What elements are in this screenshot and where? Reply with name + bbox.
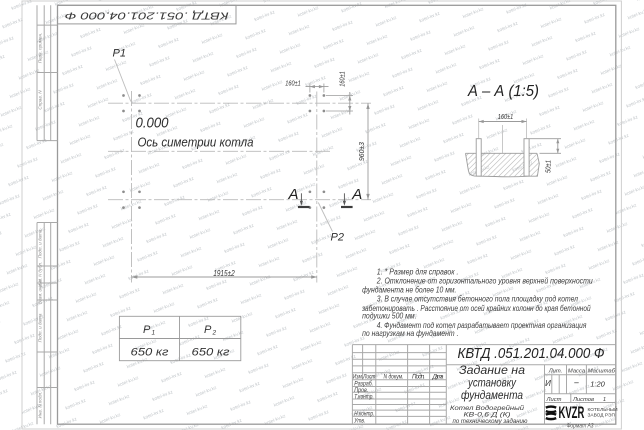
svg-text:kotel-kv.kz: kotel-kv.kz	[108, 393, 131, 406]
svg-text:kotel-kv.kz: kotel-kv.kz	[128, 268, 151, 281]
svg-text:kotel-kv.kz: kotel-kv.kz	[519, 229, 542, 242]
svg-text:kotel-kv.kz: kotel-kv.kz	[327, 284, 350, 297]
svg-text:kotel-kv.kz: kotel-kv.kz	[398, 224, 421, 237]
svg-text:kotel-kv.kz: kotel-kv.kz	[75, 291, 98, 304]
svg-text:kotel-kv.kz: kotel-kv.kz	[105, 59, 128, 72]
svg-text:КВТД .051.201.04.000 Ф: КВТД .051.201.04.000 Ф	[458, 345, 605, 362]
svg-text:фундамента не более 10 мм.: фундамента не более 10 мм.	[362, 285, 456, 294]
svg-text:kotel-kv.kz: kotel-kv.kz	[257, 343, 280, 356]
svg-text:kotel-kv.kz: kotel-kv.kz	[375, 15, 398, 28]
svg-text:kotel-kv.kz: kotel-kv.kz	[201, 32, 224, 45]
svg-text:kotel-kv.kz: kotel-kv.kz	[96, 77, 119, 90]
svg-text:kotel-kv.kz: kotel-kv.kz	[242, 204, 265, 217]
svg-text:kotel-kv.kz: kotel-kv.kz	[422, 345, 445, 358]
svg-text:kotel-kv.kz: kotel-kv.kz	[614, 290, 637, 303]
svg-text:kotel-kv.kz: kotel-kv.kz	[321, 126, 344, 139]
svg-text:–: –	[573, 378, 579, 387]
svg-text:kotel-kv.kz: kotel-kv.kz	[270, 60, 293, 73]
svg-text:kotel-kv.kz: kotel-kv.kz	[269, 148, 292, 161]
svg-text:kotel-kv.kz: kotel-kv.kz	[417, 99, 440, 112]
svg-text:kotel-kv.kz: kotel-kv.kz	[99, 412, 122, 425]
svg-text:kotel-kv.kz: kotel-kv.kz	[608, 133, 631, 146]
svg-text:kotel-kv.kz: kotel-kv.kz	[186, 403, 209, 416]
svg-text:kotel-kv.kz: kotel-kv.kz	[231, 311, 254, 324]
svg-text:kotel-kv.kz: kotel-kv.kz	[441, 219, 464, 232]
svg-text:kotel-kv.kz: kotel-kv.kz	[15, 244, 38, 257]
svg-text:kotel-kv.kz: kotel-kv.kz	[341, 0, 364, 13]
svg-text:2: 2	[212, 330, 217, 337]
svg-text:kotel-kv.kz: kotel-kv.kz	[335, 353, 358, 366]
svg-text:kotel-kv.kz: kotel-kv.kz	[252, 97, 275, 110]
svg-text:kotel-kv.kz: kotel-kv.kz	[104, 147, 127, 160]
svg-text:kotel-kv.kz: kotel-kv.kz	[170, 352, 193, 365]
svg-text:kotel-kv.kz: kotel-kv.kz	[582, 100, 605, 113]
svg-text:kotel-kv.kz: kotel-kv.kz	[401, 47, 424, 60]
svg-text:kotel-kv.kz: kotel-kv.kz	[506, 2, 529, 15]
svg-text:kotel-kv.kz: kotel-kv.kz	[77, 203, 100, 216]
svg-text:kotel-kv.kz: kotel-kv.kz	[195, 385, 218, 398]
svg-text:kotel-kv.kz: kotel-kv.kz	[522, 53, 545, 66]
svg-text:kotel-kv.kz: kotel-kv.kz	[630, 342, 644, 355]
svg-text:kotel-kv.kz: kotel-kv.kz	[57, 328, 80, 341]
svg-text:kotel-kv.kz: kotel-kv.kz	[260, 167, 283, 180]
svg-text:kotel-kv.kz: kotel-kv.kz	[308, 409, 331, 422]
svg-text:kotel-kv.kz: kotel-kv.kz	[485, 215, 508, 228]
svg-text:kotel-kv.kz: kotel-kv.kz	[575, 30, 598, 43]
svg-text:kotel-kv.kz: kotel-kv.kz	[9, 86, 32, 99]
svg-text:kotel-kv.kz: kotel-kv.kz	[2, 16, 25, 29]
svg-text:kotel-kv.kz: kotel-kv.kz	[383, 84, 406, 97]
svg-text:kotel-kv.kz: kotel-kv.kz	[462, 6, 485, 19]
svg-text:kotel-kv.kz: kotel-kv.kz	[0, 193, 21, 206]
svg-text:kotel-kv.kz: kotel-kv.kz	[363, 210, 386, 223]
svg-text:kotel-kv.kz: kotel-kv.kz	[225, 153, 248, 166]
svg-text:kotel-kv.kz: kotel-kv.kz	[0, 388, 9, 401]
svg-text:kotel-kv.kz: kotel-kv.kz	[273, 395, 296, 408]
svg-text:kotel-kv.kz: kotel-kv.kz	[240, 292, 263, 305]
svg-text:kotel-kv.kz: kotel-kv.kz	[51, 170, 74, 183]
svg-text:kotel-kv.kz: kotel-kv.kz	[245, 28, 268, 41]
svg-text:по техническому заданию: по техническому заданию	[453, 417, 528, 425]
svg-text:kotel-kv.kz: kotel-kv.kz	[249, 274, 272, 287]
svg-text:650 кг: 650 кг	[192, 346, 231, 358]
svg-text:kotel-kv.kz: kotel-kv.kz	[60, 151, 83, 164]
svg-text:3. В случае отсутствия бетонно: 3. В случае отсутствия бетонного пола пл…	[377, 295, 579, 304]
svg-text:kotel-kv.kz: kotel-kv.kz	[0, 281, 20, 294]
svg-text:kotel-kv.kz: kotel-kv.kz	[557, 67, 580, 80]
svg-text:kotel-kv.kz: kotel-kv.kz	[111, 217, 134, 230]
svg-text:P2: P2	[331, 232, 344, 244]
svg-text:kotel-kv.kz: kotel-kv.kz	[326, 372, 349, 385]
svg-text:kotel-kv.kz: kotel-kv.kz	[332, 19, 355, 32]
svg-text:kotel-kv.kz: kotel-kv.kz	[452, 113, 475, 126]
svg-text:kotel-kv.kz: kotel-kv.kz	[410, 29, 433, 42]
svg-text:P1: P1	[113, 48, 126, 60]
svg-text:подушки 500 мм.: подушки 500 мм.	[362, 311, 417, 320]
svg-text:kotel-kv.kz: kotel-kv.kz	[56, 416, 79, 429]
svg-text:А: А	[351, 186, 362, 203]
svg-text:kotel-kv.kz: kotel-kv.kz	[275, 306, 298, 319]
svg-text:kotel-kv.kz: kotel-kv.kz	[239, 380, 262, 393]
svg-text:kotel-kv.kz: kotel-kv.kz	[606, 221, 629, 234]
svg-text:kotel-kv.kz: kotel-kv.kz	[0, 299, 11, 312]
svg-text:по нагрузкам на фундамент .: по нагрузкам на фундамент .	[362, 329, 458, 338]
svg-text:kotel-kv.kz: kotel-kv.kz	[0, 53, 6, 66]
svg-text:kotel-kv.kz: kotel-kv.kz	[137, 250, 160, 263]
svg-text:kotel-kv.kz: kotel-kv.kz	[0, 35, 15, 48]
svg-text:Масса: Масса	[568, 368, 586, 374]
svg-text:kotel-kv.kz: kotel-kv.kz	[572, 207, 595, 220]
svg-text:P: P	[143, 324, 151, 336]
svg-text:kotel-kv.kz: kotel-kv.kz	[588, 258, 611, 271]
svg-text:kotel-kv.kz: kotel-kv.kz	[65, 398, 88, 411]
svg-text:kotel-kv.kz: kotel-kv.kz	[314, 56, 337, 69]
svg-text:kotel-kv.kz: kotel-kv.kz	[546, 174, 569, 187]
svg-text:kotel-kv.kz: kotel-kv.kz	[372, 191, 395, 204]
svg-text:kotel-kv.kz: kotel-kv.kz	[309, 321, 332, 334]
svg-text:kotel-kv.kz: kotel-kv.kz	[119, 287, 142, 300]
svg-text:kotel-kv.kz: kotel-kv.kz	[180, 245, 203, 258]
svg-text:kotel-kv.kz: kotel-kv.kz	[443, 131, 466, 144]
svg-text:kotel-kv.kz: kotel-kv.kz	[50, 258, 73, 271]
svg-text:kotel-kv.kz: kotel-kv.kz	[44, 100, 67, 113]
svg-text:kotel-kv.kz: kotel-kv.kz	[566, 49, 589, 62]
svg-text:Инв. N подл.: Инв. N подл.	[38, 392, 43, 419]
svg-text:kotel-kv.kz: kotel-kv.kz	[632, 253, 644, 266]
svg-text:kotel-kv.kz: kotel-kv.kz	[69, 133, 92, 146]
svg-text:kotel-kv.kz: kotel-kv.kz	[207, 190, 230, 203]
svg-text:kotel-kv.kz: kotel-kv.kz	[254, 9, 277, 22]
svg-text:kotel-kv.kz: kotel-kv.kz	[86, 184, 109, 197]
svg-text:kotel-kv.kz: kotel-kv.kz	[444, 43, 467, 56]
svg-text:kotel-kv.kz: kotel-kv.kz	[192, 50, 215, 63]
svg-text:kotel-kv.kz: kotel-kv.kz	[0, 142, 5, 155]
svg-text:P: P	[204, 324, 212, 336]
svg-text:kotel-kv.kz: kotel-kv.kz	[14, 332, 37, 345]
svg-text:0.000: 0.000	[136, 115, 170, 132]
svg-text:kotel-kv.kz: kotel-kv.kz	[626, 96, 644, 109]
svg-text:kotel-kv.kz: kotel-kv.kz	[435, 62, 458, 75]
svg-text:kotel-kv.kz: kotel-kv.kz	[155, 213, 178, 226]
svg-text:160±1: 160±1	[340, 71, 347, 87]
svg-text:И: И	[545, 379, 551, 388]
svg-text:Формат А3: Формат А3	[567, 422, 594, 429]
svg-text:kotel-kv.kz: kotel-kv.kz	[66, 309, 89, 322]
svg-text:kotel-kv.kz: kotel-kv.kz	[599, 151, 622, 164]
svg-text:kotel-kv.kz: kotel-kv.kz	[80, 26, 103, 39]
svg-text:kotel-kv.kz: kotel-kv.kz	[143, 407, 166, 420]
svg-text:kotel-kv.kz: kotel-kv.kz	[0, 230, 3, 243]
svg-text:1:20: 1:20	[590, 379, 605, 388]
svg-text:kotel-kv.kz: kotel-kv.kz	[162, 282, 185, 295]
svg-text:Масштаб: Масштаб	[588, 368, 616, 374]
svg-text:kotel-kv.kz: kotel-kv.kz	[218, 83, 241, 96]
svg-text:kotel-kv.kz: kotel-kv.kz	[320, 214, 343, 227]
svg-text:kotel-kv.kz: kotel-kv.kz	[92, 342, 115, 355]
svg-text:kotel-kv.kz: kotel-kv.kz	[0, 105, 23, 118]
svg-text:kotel-kv.kz: kotel-kv.kz	[288, 23, 311, 36]
svg-text:kotel-kv.kz: kotel-kv.kz	[300, 339, 323, 352]
svg-text:kotel-kv.kz: kotel-kv.kz	[161, 370, 184, 383]
svg-text:kotel-kv.kz: kotel-kv.kz	[6, 262, 29, 275]
svg-text:kotel-kv.kz: kotel-kv.kz	[617, 114, 640, 127]
svg-text:kotel-kv.kz: kotel-kv.kz	[266, 325, 289, 338]
svg-text:kotel-kv.kz: kotel-kv.kz	[0, 318, 2, 331]
svg-text:А: А	[288, 186, 299, 203]
svg-text:1915±2: 1915±2	[213, 269, 235, 278]
svg-text:kotel-kv.kz: kotel-kv.kz	[84, 272, 107, 285]
svg-text:Дата: Дата	[432, 373, 445, 380]
svg-text:Утв.: Утв.	[354, 418, 366, 425]
svg-text:kotel-kv.kz: kotel-kv.kz	[189, 227, 212, 240]
svg-text:kotel-kv.kz: kotel-kv.kz	[596, 327, 619, 340]
svg-text:kotel-kv.kz: kotel-kv.kz	[416, 187, 439, 200]
svg-text:kotel-kv.kz: kotel-kv.kz	[530, 123, 553, 136]
svg-text:kotel-kv.kz: kotel-kv.kz	[581, 188, 604, 201]
svg-text:kotel-kv.kz: kotel-kv.kz	[555, 155, 578, 168]
svg-text:kotel-kv.kz: kotel-kv.kz	[117, 375, 140, 388]
svg-text:kotel-kv.kz: kotel-kv.kz	[419, 10, 442, 23]
svg-text:kotel-kv.kz: kotel-kv.kz	[539, 104, 562, 117]
svg-text:kotel-kv.kz: kotel-kv.kz	[278, 130, 301, 143]
svg-text:kotel-kv.kz: kotel-kv.kz	[282, 376, 305, 389]
svg-text:kotel-kv.kz: kotel-kv.kz	[197, 296, 220, 309]
svg-text:Ось симетрии котла: Ось симетрии котла	[138, 135, 254, 150]
svg-text:kotel-kv.kz: kotel-kv.kz	[497, 20, 520, 33]
svg-text:kotel-kv.kz: kotel-kv.kz	[251, 185, 274, 198]
svg-text:kotel-kv.kz: kotel-kv.kz	[345, 247, 368, 260]
svg-text:50±1: 50±1	[546, 160, 553, 173]
svg-text:kotel-kv.kz: kotel-kv.kz	[318, 302, 341, 315]
svg-text:kotel-kv.kz: kotel-kv.kz	[584, 12, 607, 25]
svg-text:kotel-kv.kz: kotel-kv.kz	[179, 333, 202, 346]
svg-text:kotel-kv.kz: kotel-kv.kz	[204, 366, 227, 379]
svg-text:kotel-kv.kz: kotel-kv.kz	[258, 255, 281, 268]
svg-text:kotel-kv.kz: kotel-kv.kz	[164, 194, 187, 207]
svg-text:kotel-kv.kz: kotel-kv.kz	[291, 358, 314, 371]
svg-text:kotel-kv.kz: kotel-kv.kz	[453, 25, 476, 38]
svg-text:kotel-kv.kz: kotel-kv.kz	[171, 264, 194, 277]
svg-text:kotel-kv.kz: kotel-kv.kz	[5, 351, 28, 364]
svg-text:kotel-kv.kz: kotel-kv.kz	[78, 114, 101, 127]
svg-text:установку: установку	[467, 377, 517, 389]
svg-text:kotel-kv.kz: kotel-kv.kz	[627, 7, 644, 20]
svg-text:kotel-kv.kz: kotel-kv.kz	[348, 70, 371, 83]
svg-text:kotel-kv.kz: kotel-kv.kz	[600, 63, 623, 76]
svg-text:kotel-kv.kz: kotel-kv.kz	[621, 360, 644, 373]
svg-text:1. * Размер для справок .: 1. * Размер для справок .	[377, 267, 459, 276]
svg-text:160±1: 160±1	[285, 80, 301, 87]
svg-text:kotel-kv.kz: kotel-kv.kz	[312, 144, 335, 157]
svg-text:kotel-kv.kz: kotel-kv.kz	[554, 244, 577, 257]
svg-text:kotel-kv.kz: kotel-kv.kz	[531, 34, 554, 47]
svg-text:kotel-kv.kz: kotel-kv.kz	[635, 77, 644, 90]
svg-text:kotel-kv.kz: kotel-kv.kz	[83, 361, 106, 374]
svg-text:kotel-kv.kz: kotel-kv.kz	[206, 278, 229, 291]
svg-text:А – А (1:5): А – А (1:5)	[467, 83, 539, 100]
svg-text:kotel-kv.kz: kotel-kv.kz	[287, 111, 310, 124]
svg-text:ЗАВОД РЭП: ЗАВОД РЭП	[588, 413, 616, 419]
svg-text:kotel-kv.kz: kotel-kv.kz	[354, 228, 377, 241]
svg-text:kotel-kv.kz: kotel-kv.kz	[432, 238, 455, 251]
svg-text:kotel-kv.kz: kotel-kv.kz	[395, 400, 418, 413]
svg-text:kotel-kv.kz: kotel-kv.kz	[200, 120, 223, 133]
svg-text:kotel-kv.kz: kotel-kv.kz	[639, 323, 644, 336]
svg-text:kotel-kv.kz: kotel-kv.kz	[494, 197, 517, 210]
svg-text:kotel-kv.kz: kotel-kv.kz	[216, 171, 239, 184]
svg-text:kotel-kv.kz: kotel-kv.kz	[198, 208, 221, 221]
svg-text:kotel-kv.kz: kotel-kv.kz	[590, 170, 613, 183]
svg-text:kotel-kv.kz: kotel-kv.kz	[624, 184, 644, 197]
svg-text:фундамента: фундамента	[461, 390, 523, 402]
svg-text:kotel-kv.kz: kotel-kv.kz	[426, 80, 449, 93]
svg-text:650 кг: 650 кг	[131, 346, 170, 358]
svg-text:kotel-kv.kz: kotel-kv.kz	[467, 252, 490, 265]
svg-text:kotel-kv.kz: kotel-kv.kz	[279, 42, 302, 55]
svg-text:kotel-kv.kz: kotel-kv.kz	[33, 207, 56, 220]
svg-text:kotel-kv.kz: kotel-kv.kz	[447, 377, 470, 390]
svg-text:kotel-kv.kz: kotel-kv.kz	[623, 272, 644, 285]
svg-text:kotel-kv.kz: kotel-kv.kz	[140, 73, 163, 86]
svg-text:kotel-kv.kz: kotel-kv.kz	[357, 52, 380, 65]
svg-text:kotel-kv.kz: kotel-kv.kz	[53, 82, 76, 95]
svg-text:kotel-kv.kz: kotel-kv.kz	[564, 137, 587, 150]
svg-text:kotel-kv.kz: kotel-kv.kz	[389, 242, 412, 255]
svg-text:kotel-kv.kz: kotel-kv.kz	[573, 118, 596, 131]
svg-text:kotel-kv.kz: kotel-kv.kz	[636, 0, 644, 2]
svg-text:kotel-kv.kz: kotel-kv.kz	[545, 262, 568, 275]
svg-text:kotel-kv.kz: kotel-kv.kz	[42, 188, 65, 201]
svg-text:kotel-kv.kz: kotel-kv.kz	[296, 93, 319, 106]
svg-text:kotel-kv.kz: kotel-kv.kz	[95, 166, 118, 179]
svg-text:kotel-kv.kz: kotel-kv.kz	[222, 329, 245, 342]
svg-text:Подп.: Подп.	[412, 373, 425, 380]
svg-text:kotel-kv.kz: kotel-kv.kz	[486, 127, 509, 140]
svg-text:kotel-kv.kz: kotel-kv.kz	[261, 79, 284, 92]
svg-text:kotel-kv.kz: kotel-kv.kz	[227, 65, 250, 78]
svg-text:kotel-kv.kz: kotel-kv.kz	[174, 87, 197, 100]
svg-text:Перв. примен.: Перв. примен.	[38, 33, 43, 64]
svg-text:Справ. N: Справ. N	[38, 90, 43, 110]
svg-text:kotel-kv.kz: kotel-kv.kz	[276, 218, 299, 231]
svg-text:kotel-kv.kz: kotel-kv.kz	[425, 168, 448, 181]
svg-text:kotel-kv.kz: kotel-kv.kz	[233, 222, 256, 235]
svg-text:kotel-kv.kz: kotel-kv.kz	[248, 362, 271, 375]
svg-text:N докум.: N докум.	[384, 373, 404, 380]
svg-text:kotel-kv.kz: kotel-kv.kz	[392, 66, 415, 79]
svg-text:160±1: 160±1	[498, 114, 514, 121]
svg-text:kotel-kv.kz: kotel-kv.kz	[303, 163, 326, 176]
svg-text:2. Отклонение от горизонтально: 2. Отклонение от горизонтального уровня …	[376, 277, 593, 286]
svg-text:kotel-kv.kz: kotel-kv.kz	[182, 157, 205, 170]
svg-text:kotel-kv.kz: kotel-kv.kz	[510, 248, 533, 261]
svg-text:kotel-kv.kz: kotel-kv.kz	[408, 117, 431, 130]
svg-text:Взам. инв. N: Взам. инв. N	[38, 278, 43, 304]
svg-text:kotel-kv.kz: kotel-kv.kz	[641, 235, 644, 248]
svg-text:KVZR: KVZR	[559, 403, 585, 422]
svg-text:КВТД .051.201.04.000 Ф: КВТД .051.201.04.000 Ф	[65, 9, 229, 21]
svg-text:kotel-kv.kz: kotel-kv.kz	[615, 202, 638, 215]
svg-text:kotel-kv.kz: kotel-kv.kz	[152, 389, 175, 402]
svg-text:kotel-kv.kz: kotel-kv.kz	[243, 116, 266, 129]
svg-text:kotel-kv.kz: kotel-kv.kz	[87, 96, 110, 109]
svg-text:kotel-kv.kz: kotel-kv.kz	[323, 37, 346, 50]
svg-text:kotel-kv.kz: kotel-kv.kz	[503, 178, 526, 191]
svg-text:kotel-kv.kz: kotel-kv.kz	[317, 390, 340, 403]
svg-text:kotel-kv.kz: kotel-kv.kz	[563, 225, 586, 238]
svg-text:kotel-kv.kz: kotel-kv.kz	[24, 225, 47, 238]
svg-text:kotel-kv.kz: kotel-kv.kz	[0, 123, 14, 136]
svg-text:kotel-kv.kz: kotel-kv.kz	[540, 16, 563, 29]
svg-text:kotel-kv.kz: kotel-kv.kz	[45, 12, 68, 25]
svg-text:kotel-kv.kz: kotel-kv.kz	[378, 349, 401, 362]
svg-text:kotel-kv.kz: kotel-kv.kz	[488, 39, 511, 52]
svg-text:kotel-kv.kz: kotel-kv.kz	[236, 46, 259, 59]
svg-text:kotel-kv.kz: kotel-kv.kz	[528, 211, 551, 224]
svg-text:kotel-kv.kz: kotel-kv.kz	[183, 69, 206, 82]
svg-text:kotel-kv.kz: kotel-kv.kz	[173, 176, 196, 189]
svg-text:kotel-kv.kz: kotel-kv.kz	[93, 254, 116, 267]
svg-text:1: 1	[152, 330, 156, 337]
svg-text:kotel-kv.kz: kotel-kv.kz	[434, 150, 457, 163]
svg-text:kotel-kv.kz: kotel-kv.kz	[0, 369, 18, 382]
svg-text:kotel-kv.kz: kotel-kv.kz	[74, 379, 97, 392]
svg-text:kotel-kv.kz: kotel-kv.kz	[374, 103, 397, 116]
svg-text:kotel-kv.kz: kotel-kv.kz	[537, 192, 560, 205]
svg-text:Подп. и дата: Подп. и дата	[38, 229, 43, 258]
svg-text:kotel-kv.kz: kotel-kv.kz	[224, 241, 247, 254]
svg-text:kotel-kv.kz: kotel-kv.kz	[17, 156, 40, 169]
svg-text:kotel-kv.kz: kotel-kv.kz	[35, 119, 58, 132]
svg-text:kotel-kv.kz: kotel-kv.kz	[158, 36, 181, 49]
svg-text:kotel-kv.kz: kotel-kv.kz	[479, 57, 502, 70]
svg-text:kotel-kv.kz: kotel-kv.kz	[62, 63, 85, 76]
svg-text:kotel-kv.kz: kotel-kv.kz	[146, 231, 169, 244]
svg-text:kotel-kv.kz: kotel-kv.kz	[459, 182, 482, 195]
svg-text:kotel-kv.kz: kotel-kv.kz	[336, 265, 359, 278]
svg-text:kotel-kv.kz: kotel-kv.kz	[399, 136, 422, 149]
svg-text:kotel-kv.kz: kotel-kv.kz	[71, 45, 94, 58]
svg-text:kotel-kv.kz: kotel-kv.kz	[138, 161, 161, 174]
svg-text:kotel-kv.kz: kotel-kv.kz	[591, 81, 614, 94]
svg-text:Лит.: Лит.	[548, 368, 563, 374]
svg-text:Т.контр.: Т.контр.	[354, 393, 374, 400]
svg-text:Подп. и дата: Подп. и дата	[38, 313, 43, 342]
svg-text:960±3: 960±3	[357, 141, 366, 161]
svg-text:kotel-kv.kz: kotel-kv.kz	[153, 301, 176, 314]
svg-text:kotel-kv.kz: kotel-kv.kz	[297, 5, 320, 18]
svg-text:1: 1	[603, 397, 606, 403]
svg-text:Изм.Лист: Изм.Лист	[353, 373, 376, 380]
svg-text:kotel-kv.kz: kotel-kv.kz	[8, 174, 31, 187]
svg-text:kotel-kv.kz: kotel-kv.kz	[68, 221, 91, 234]
svg-text:kotel-kv.kz: kotel-kv.kz	[284, 288, 307, 301]
svg-text:kotel-kv.kz: kotel-kv.kz	[302, 251, 325, 264]
svg-text:kotel-kv.kz: kotel-kv.kz	[59, 240, 82, 253]
svg-text:kotel-kv.kz: kotel-kv.kz	[476, 234, 499, 247]
svg-text:kotel-kv.kz: kotel-kv.kz	[230, 399, 253, 412]
svg-text:kotel-kv.kz: kotel-kv.kz	[390, 154, 413, 167]
svg-text:kotel-kv.kz: kotel-kv.kz	[450, 201, 473, 214]
svg-text:kotel-kv.kz: kotel-kv.kz	[552, 332, 575, 345]
svg-text:kotel-kv.kz: kotel-kv.kz	[366, 33, 389, 46]
svg-text:kotel-kv.kz: kotel-kv.kz	[0, 211, 12, 224]
svg-text:kotel-kv.kz: kotel-kv.kz	[548, 86, 571, 99]
svg-text:kotel-kv.kz: kotel-kv.kz	[381, 173, 404, 186]
svg-text:Задание на: Задание на	[459, 365, 525, 377]
svg-text:kotel-kv.kz: kotel-kv.kz	[102, 235, 125, 248]
svg-text:kotel-kv.kz: kotel-kv.kz	[48, 346, 71, 359]
